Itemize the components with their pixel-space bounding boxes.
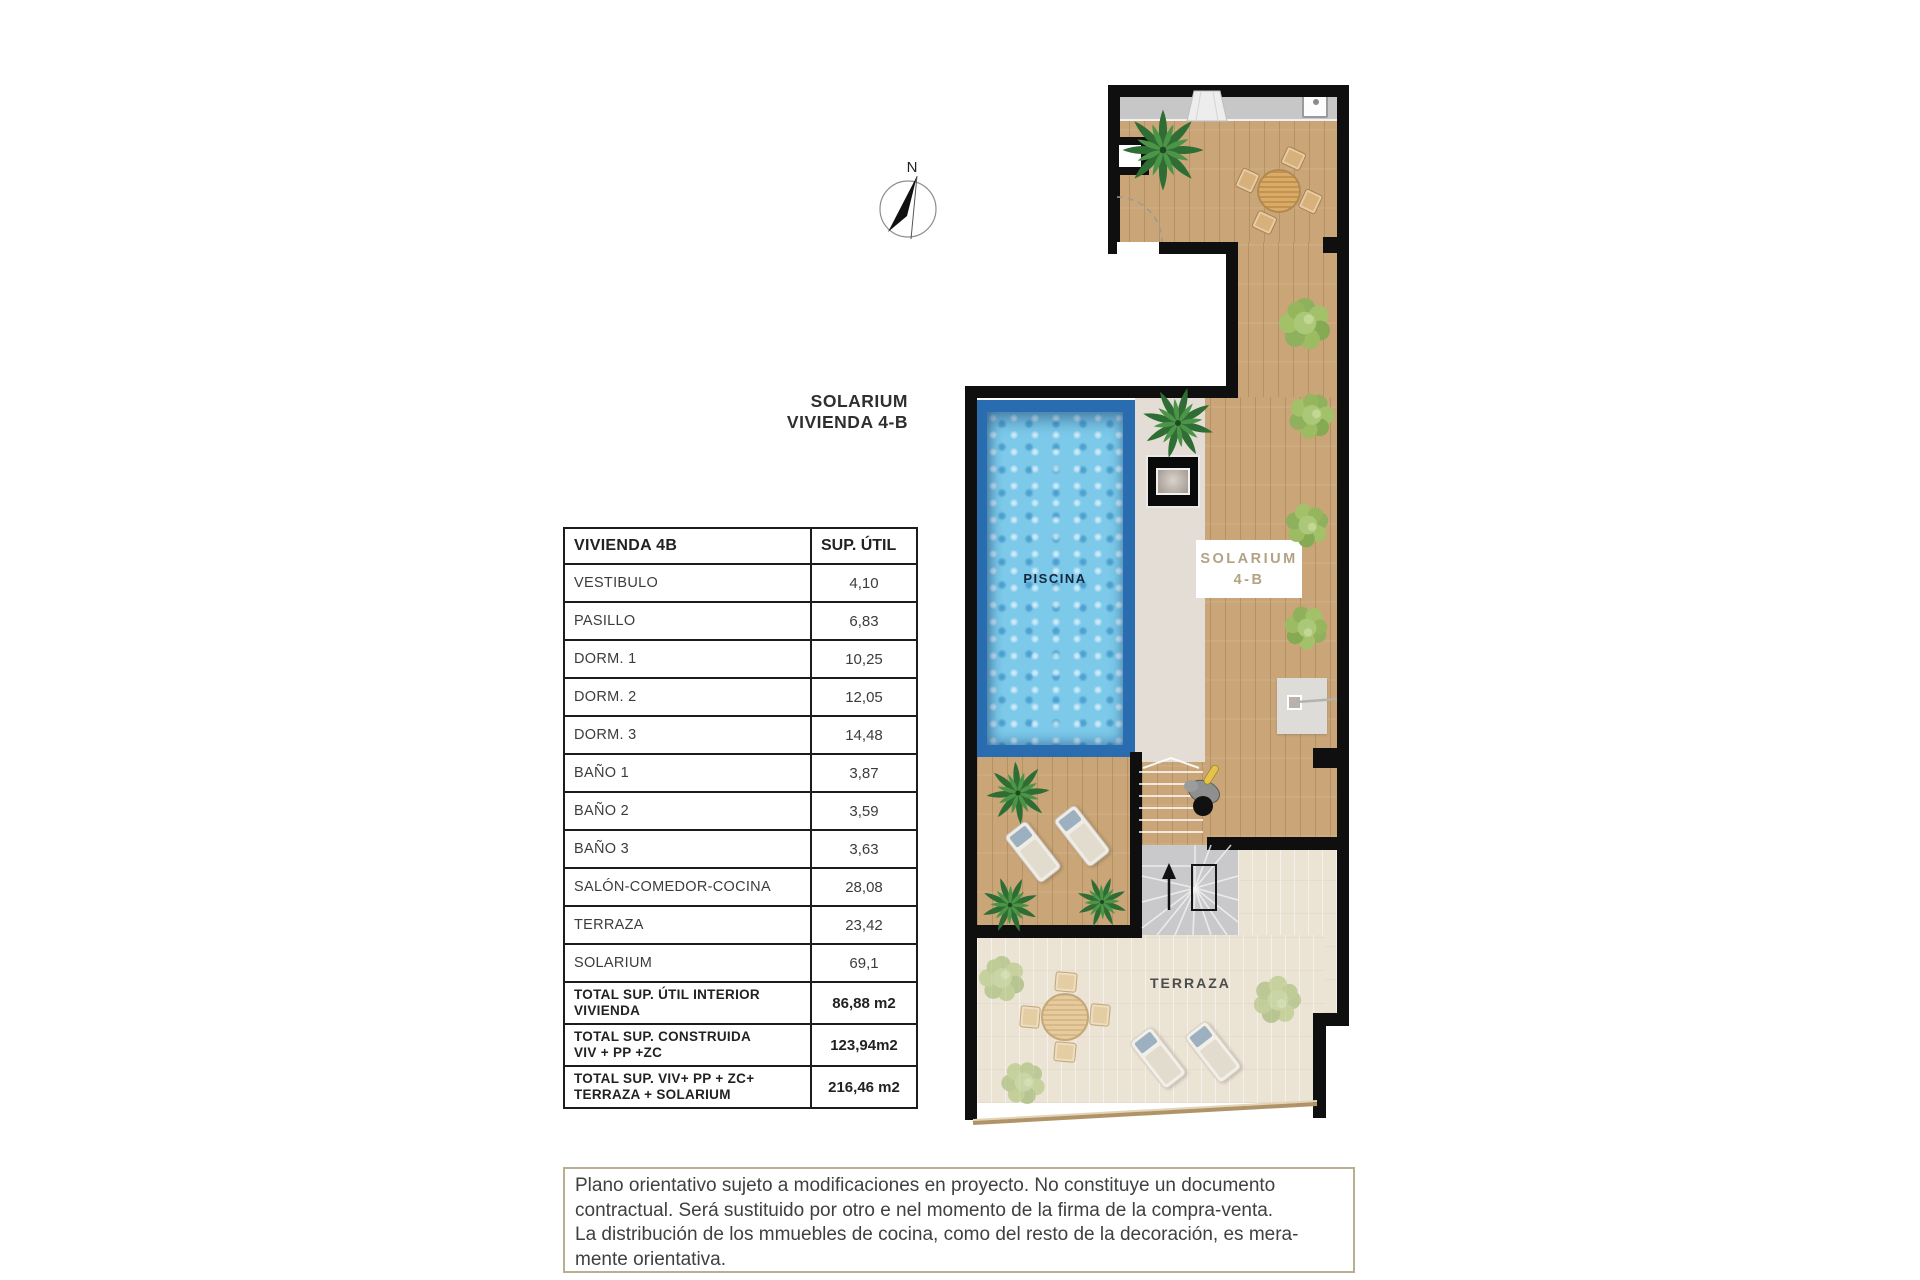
- table-header-area: SUP. ÚTIL: [810, 529, 916, 563]
- table-row: DORM. 314,48: [565, 715, 916, 753]
- row-value: 12,05: [810, 679, 916, 715]
- wall: [1337, 85, 1349, 1013]
- wall: [1226, 242, 1238, 397]
- corridor-floor: [1233, 242, 1337, 402]
- table-header-name: VIVIENDA 4B: [565, 529, 810, 563]
- total-value: 216,46 m2: [810, 1067, 916, 1107]
- table-row: VESTIBULO4,10: [565, 563, 916, 601]
- terrace-edge-highlight: [973, 1101, 1317, 1120]
- pool-surround: [1135, 397, 1205, 762]
- faucet-icon: [1313, 99, 1319, 105]
- page-title: SOLARIUM VIVIENDA 4-B: [640, 391, 908, 433]
- wall: [1313, 1026, 1326, 1118]
- row-label: DORM. 1: [565, 641, 810, 677]
- chair: [1053, 1041, 1077, 1063]
- total-value: 86,88 m2: [810, 983, 916, 1023]
- wall-pillar: [1313, 748, 1337, 768]
- row-label: PASILLO: [565, 603, 810, 639]
- door-opening: [1117, 242, 1159, 254]
- row-value: 23,42: [810, 907, 916, 943]
- solarium-unit-label: 4-B: [1234, 572, 1265, 588]
- table-row: DORM. 212,05: [565, 677, 916, 715]
- staircase: [1142, 845, 1238, 935]
- compass-icon: N: [868, 140, 960, 252]
- outdoor-shower-pad: [1277, 678, 1327, 734]
- row-value: 69,1: [810, 945, 916, 981]
- row-value: 3,59: [810, 793, 916, 829]
- row-label: DORM. 2: [565, 679, 810, 715]
- row-label: BAÑO 1: [565, 755, 810, 791]
- dining-table: [1257, 169, 1301, 213]
- wall-stub: [1323, 237, 1337, 253]
- total-label: TOTAL SUP. CONSTRUIDA VIV + PP +ZC: [565, 1025, 810, 1065]
- swimming-pool: PISCINA: [975, 400, 1135, 757]
- row-value: 4,10: [810, 565, 916, 601]
- wall: [1207, 837, 1337, 850]
- table-total-row: TOTAL SUP. ÚTIL INTERIOR VIVIENDA86,88 m…: [565, 981, 916, 1023]
- row-label: DORM. 3: [565, 717, 810, 753]
- row-value: 3,63: [810, 831, 916, 867]
- floor-plan: PISCINA SOLARIUM 4-B: [965, 80, 1350, 1125]
- terrace-edge-railing: [973, 1104, 1317, 1123]
- row-label: SALÓN-COMEDOR-COCINA: [565, 869, 810, 905]
- row-value: 14,48: [810, 717, 916, 753]
- row-label: BAÑO 2: [565, 793, 810, 829]
- row-label: VESTIBULO: [565, 565, 810, 601]
- table-row: BAÑO 33,63: [565, 829, 916, 867]
- areas-table: VIVIENDA 4B SUP. ÚTIL VESTIBULO4,10 PASI…: [563, 527, 918, 1109]
- row-value: 3,87: [810, 755, 916, 791]
- table-row: TERRAZA23,42: [565, 905, 916, 943]
- wall: [1108, 85, 1348, 97]
- piscina-label: PISCINA: [1023, 571, 1086, 586]
- table-total-row: TOTAL SUP. VIV+ PP + ZC+ TERRAZA + SOLAR…: [565, 1065, 916, 1107]
- wall: [1313, 1013, 1349, 1026]
- table-row: BAÑO 23,59: [565, 791, 916, 829]
- terraza-label: TERRAZA: [1150, 975, 1231, 991]
- disclaimer-note: Plano orientativo sujeto a modificacione…: [563, 1167, 1355, 1273]
- wall: [965, 386, 977, 1120]
- sink-icon: [1302, 95, 1328, 118]
- wall: [1130, 752, 1142, 938]
- wall: [965, 925, 1142, 938]
- row-value: 10,25: [810, 641, 916, 677]
- total-value: 123,94m2: [810, 1025, 916, 1065]
- row-value: 6,83: [810, 603, 916, 639]
- table-total-row: TOTAL SUP. CONSTRUIDA VIV + PP +ZC123,94…: [565, 1023, 916, 1065]
- chair: [1054, 971, 1078, 993]
- compass-north-label: N: [907, 159, 918, 176]
- row-label: BAÑO 3: [565, 831, 810, 867]
- lounger-deck-floor: [977, 742, 1142, 932]
- wall: [965, 386, 1238, 398]
- pool-equipment-box: [1146, 455, 1200, 508]
- deck-strip-floor: [1142, 760, 1207, 845]
- pool-equipment-hatch: [1156, 468, 1190, 495]
- shower-icon: [1287, 695, 1302, 710]
- table-row: BAÑO 13,87: [565, 753, 916, 791]
- row-label: SOLARIUM: [565, 945, 810, 981]
- wall-niche: [1111, 137, 1149, 175]
- solarium-label-box: SOLARIUM 4-B: [1196, 540, 1302, 598]
- dining-table: [1041, 993, 1089, 1041]
- chair: [1019, 1005, 1041, 1029]
- total-label: TOTAL SUP. VIV+ PP + ZC+ TERRAZA + SOLAR…: [565, 1067, 810, 1107]
- terrace-dining-set: [1029, 981, 1101, 1053]
- table-header-row: VIVIENDA 4B SUP. ÚTIL: [565, 529, 916, 563]
- table-row: SOLARIUM69,1: [565, 943, 916, 981]
- dining-set: [1244, 156, 1314, 226]
- table-row: DORM. 110,25: [565, 639, 916, 677]
- row-value: 28,08: [810, 869, 916, 905]
- table-row: SALÓN-COMEDOR-COCINA28,08: [565, 867, 916, 905]
- table-row: PASILLO6,83: [565, 601, 916, 639]
- row-label: TERRAZA: [565, 907, 810, 943]
- total-label: TOTAL SUP. ÚTIL INTERIOR VIVIENDA: [565, 983, 810, 1023]
- chair: [1089, 1003, 1111, 1027]
- page: N SOLARIUM VIVIENDA 4-B VIVIENDA 4B SUP.…: [0, 0, 1920, 1280]
- solarium-label: SOLARIUM: [1200, 551, 1297, 567]
